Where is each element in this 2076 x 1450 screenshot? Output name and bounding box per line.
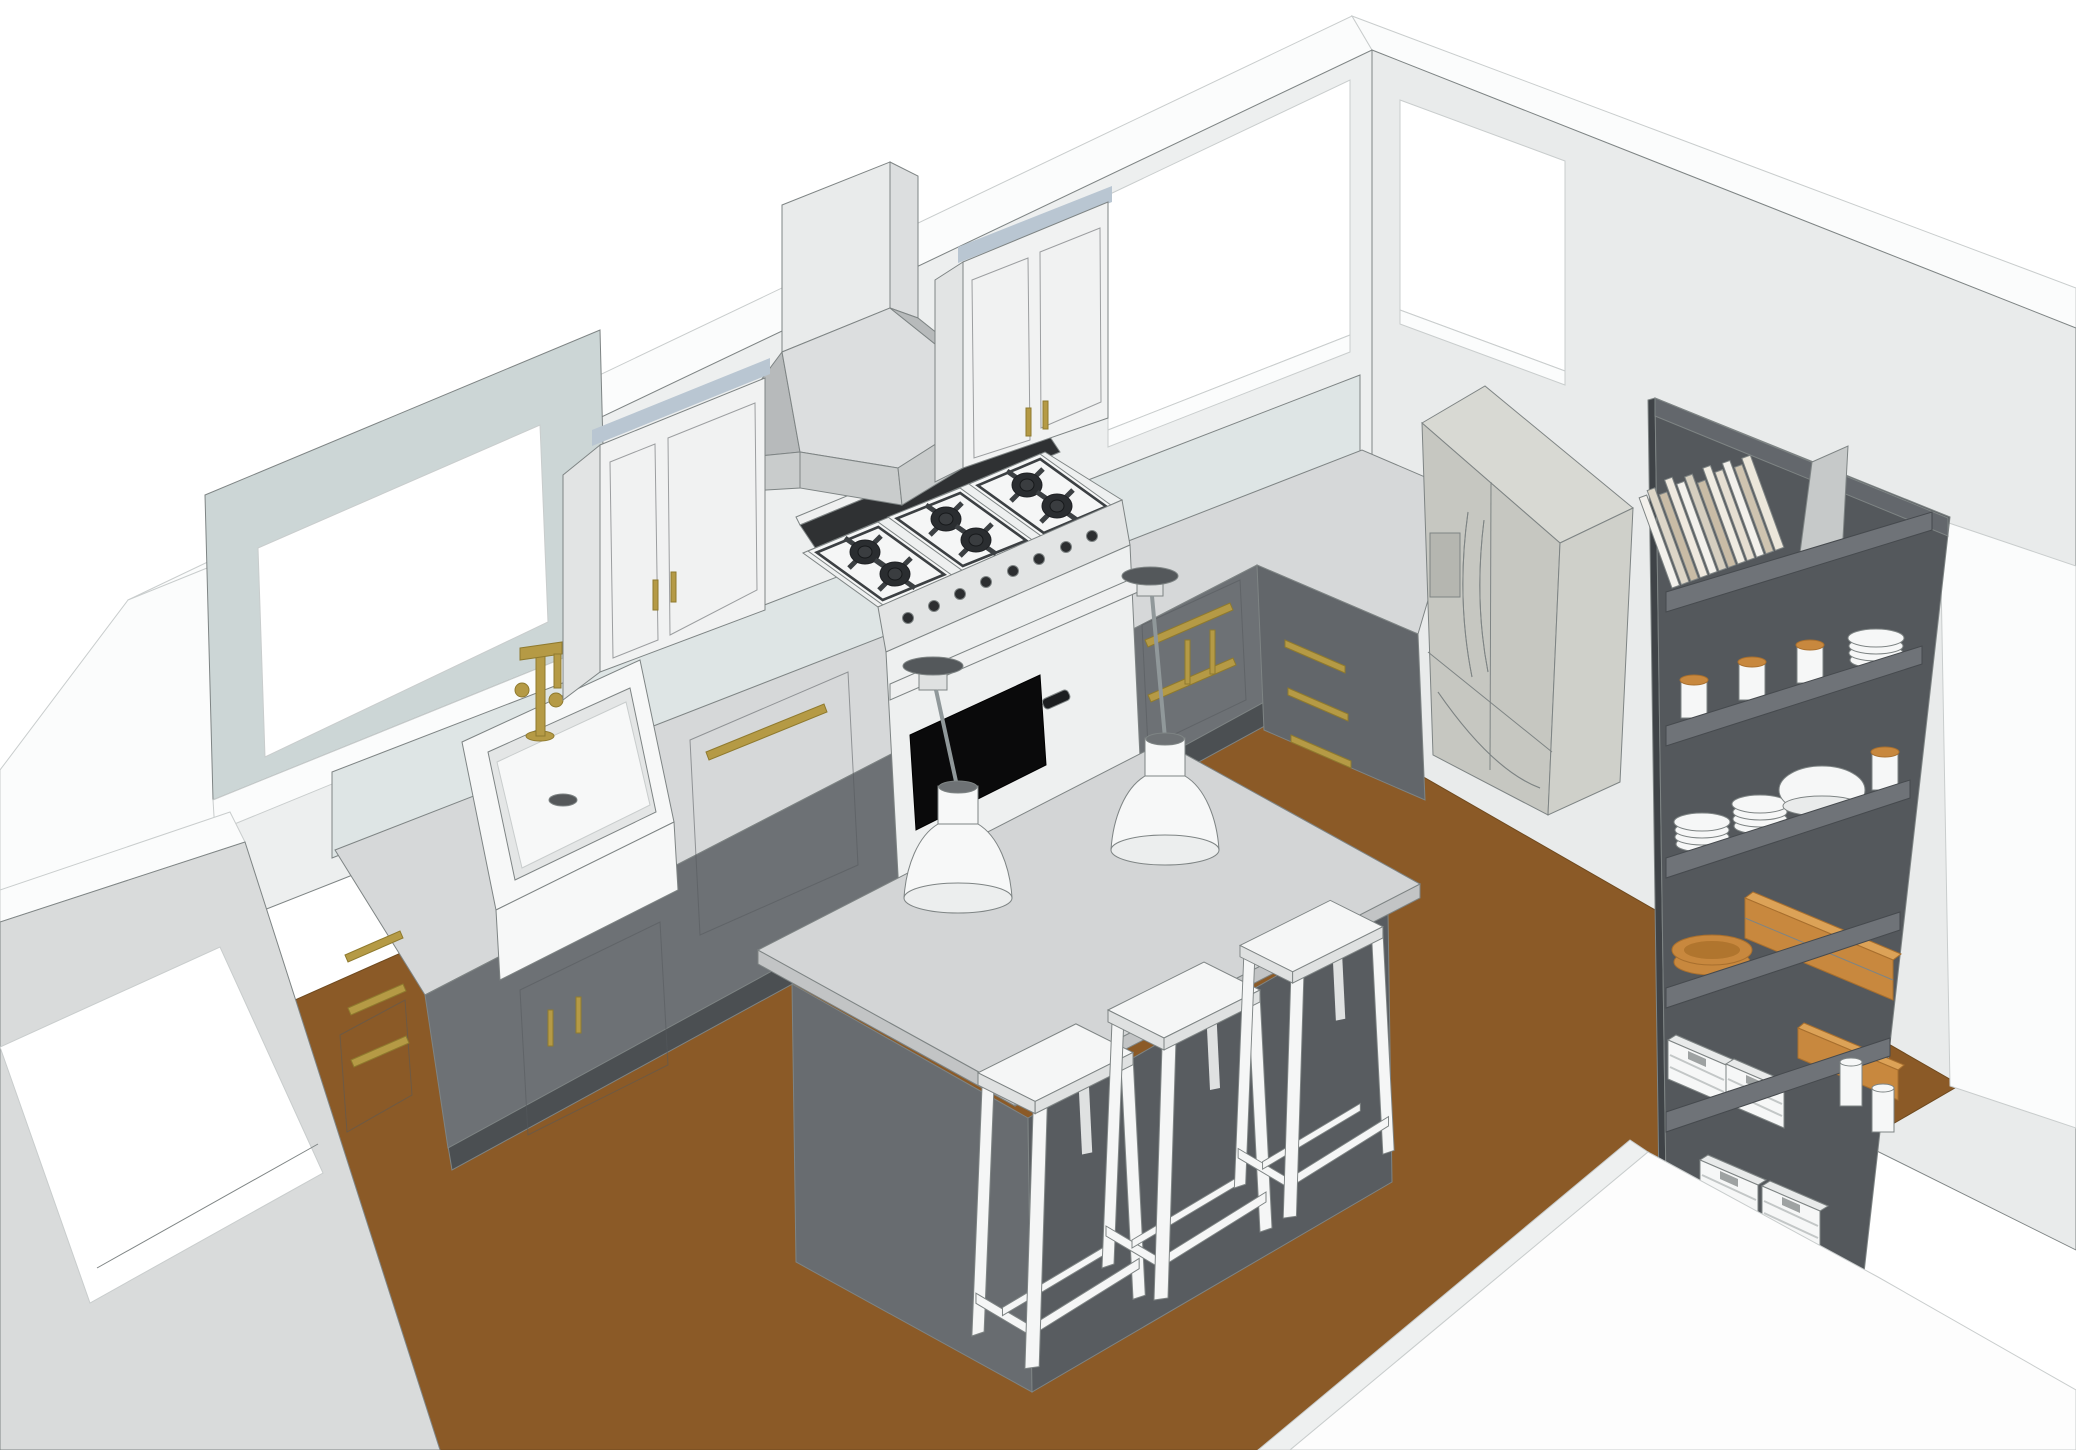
canister — [1796, 640, 1824, 683]
canister — [1871, 747, 1899, 790]
canister — [1738, 657, 1766, 700]
water-dispenser — [1430, 533, 1460, 597]
scene-canvas — [0, 0, 2076, 1450]
canister — [1680, 675, 1708, 718]
sink-drain — [549, 794, 577, 806]
right-wall-end — [1940, 520, 2076, 1128]
kitchen-3d-rendering — [0, 0, 2076, 1450]
